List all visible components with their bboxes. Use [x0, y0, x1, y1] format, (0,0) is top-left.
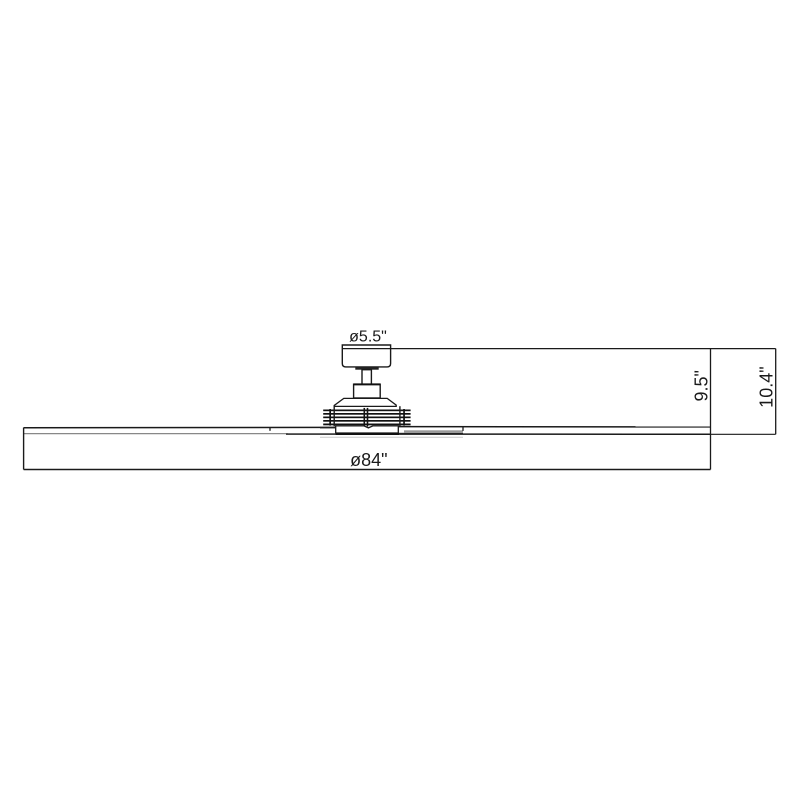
svg-text:10.4": 10.4"	[757, 366, 777, 407]
svg-text:ø5.5": ø5.5"	[349, 329, 387, 346]
svg-text:9.5": 9.5"	[692, 370, 712, 401]
svg-text:ø84": ø84"	[350, 450, 387, 470]
